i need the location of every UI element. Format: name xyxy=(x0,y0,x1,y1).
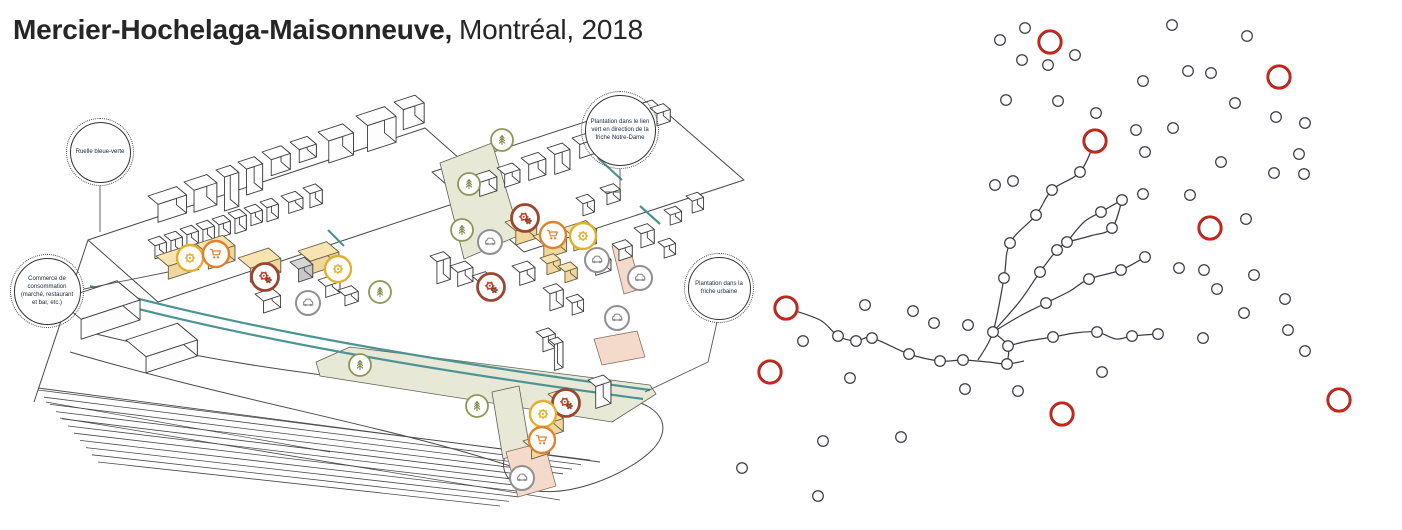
network-node xyxy=(1048,332,1059,343)
network-edge xyxy=(1067,200,1122,242)
callout-circle: Plantation dans la friche urbaine xyxy=(688,257,751,320)
car-icon xyxy=(605,306,629,330)
network-node xyxy=(1116,265,1127,276)
network-node xyxy=(818,436,829,447)
network-node xyxy=(813,491,824,502)
network-node xyxy=(1153,329,1164,340)
network-node xyxy=(1269,168,1280,179)
network-node xyxy=(1002,359,1013,370)
network-node xyxy=(1084,274,1095,285)
car-icon xyxy=(478,230,502,254)
network-node-red xyxy=(1040,32,1060,52)
network-diagram xyxy=(737,20,1351,502)
network-node xyxy=(1096,207,1107,218)
shopping-cart-icon xyxy=(529,427,555,453)
network-node xyxy=(1117,195,1128,206)
building xyxy=(262,146,290,176)
callout-label: Plantation dans la friche urbaine xyxy=(694,280,745,296)
page-title: Mercier-Hochelaga-Maisonneuve,Montréal, … xyxy=(13,14,643,46)
network-node xyxy=(1127,331,1138,342)
network-node xyxy=(860,300,871,311)
network-node xyxy=(1131,125,1142,136)
network-node xyxy=(1242,31,1253,42)
callout-circle: Commerce de consommation (marché, restau… xyxy=(14,258,81,325)
network-node xyxy=(904,349,915,360)
building xyxy=(126,323,197,372)
screenshot-root: Mercier-Hochelaga-Maisonneuve,Montréal, … xyxy=(0,0,1402,530)
callout-label: Commerce de consommation (marché, restau… xyxy=(20,275,75,307)
callout-leader-line xyxy=(645,322,717,392)
network-node xyxy=(1199,265,1210,276)
building xyxy=(549,337,563,370)
shopping-cart-icon xyxy=(540,222,566,248)
network-node xyxy=(1294,149,1305,160)
network-node xyxy=(1138,189,1149,200)
tree-icon xyxy=(466,395,488,417)
tree-icon xyxy=(349,354,371,376)
car-icon xyxy=(510,466,534,490)
building xyxy=(290,257,313,282)
pink-area xyxy=(594,331,645,365)
network-node xyxy=(1052,245,1063,256)
network-node xyxy=(1008,176,1019,187)
network-node xyxy=(1167,20,1178,31)
network-node xyxy=(833,331,844,342)
gear-yellow-icon xyxy=(325,256,351,282)
building xyxy=(255,288,281,313)
building xyxy=(450,261,473,286)
network-node-red xyxy=(1085,131,1105,151)
network-node xyxy=(1140,252,1151,263)
network-node xyxy=(1092,327,1103,338)
car-icon xyxy=(296,291,320,315)
network-node xyxy=(1174,263,1185,274)
network-node xyxy=(1003,341,1014,352)
network-node xyxy=(1241,214,1252,225)
network-node xyxy=(1075,167,1086,178)
network-node xyxy=(1041,298,1052,309)
network-node xyxy=(1047,185,1058,196)
gear-yellow-icon xyxy=(570,223,596,249)
network-node-red xyxy=(776,298,796,318)
network-node xyxy=(1097,367,1108,378)
tree-icon xyxy=(451,219,473,241)
tree-icon xyxy=(458,173,480,195)
callout-commerce-consommation: Commerce de consommation (marché, restau… xyxy=(10,254,84,328)
network-node xyxy=(1017,55,1028,66)
network-node xyxy=(1198,333,1209,344)
network-node-red xyxy=(1269,67,1289,87)
network-node xyxy=(1249,270,1260,281)
network-edge xyxy=(1067,200,1122,242)
network-node xyxy=(851,336,862,347)
network-node xyxy=(990,180,1001,191)
network-node xyxy=(1239,308,1250,319)
network-node xyxy=(1053,96,1064,107)
network-node xyxy=(1206,68,1217,79)
network-node xyxy=(798,336,809,347)
gear-yellow-icon xyxy=(530,401,556,427)
network-node xyxy=(1300,118,1311,129)
building xyxy=(394,95,424,129)
network-node xyxy=(963,320,974,331)
tree-icon xyxy=(369,281,391,303)
network-node xyxy=(1031,210,1042,221)
network-node xyxy=(1091,108,1102,119)
network-node xyxy=(1300,346,1311,357)
network-node xyxy=(737,463,748,474)
network-node xyxy=(1138,76,1149,87)
network-node xyxy=(1001,95,1012,106)
gears-red-icon xyxy=(252,264,279,291)
callout-circle: Plantation dans le lien vert en directio… xyxy=(585,95,656,166)
network-node xyxy=(1183,66,1194,77)
callout-ruelle-bleue-verte: Ruelle bleue-verte xyxy=(66,118,134,186)
network-node xyxy=(908,306,919,317)
car-icon xyxy=(585,248,609,272)
highlighted-building xyxy=(558,262,577,283)
network-node-red xyxy=(1052,404,1072,424)
network-node xyxy=(1020,23,1031,34)
network-node xyxy=(1013,386,1024,397)
network-node xyxy=(896,432,907,443)
callout-label: Ruelle bleue-verte xyxy=(76,148,125,156)
network-node xyxy=(867,333,878,344)
network-node xyxy=(1216,157,1227,168)
network-node xyxy=(995,35,1006,46)
callout-label: Plantation dans le lien vert en directio… xyxy=(591,118,650,142)
network-node xyxy=(1283,325,1294,336)
tree-icon xyxy=(491,129,513,151)
building xyxy=(338,286,358,306)
callout-circle: Ruelle bleue-verte xyxy=(70,122,131,183)
network-node xyxy=(1140,147,1151,158)
title-borough: Mercier-Hochelaga-Maisonneuve, xyxy=(13,14,452,45)
shopping-cart-icon xyxy=(203,241,229,267)
callout-plantation-friche-urbaine: Plantation dans la friche urbaine xyxy=(684,253,754,323)
network-node xyxy=(1168,123,1179,134)
network-node xyxy=(935,356,946,367)
building xyxy=(430,252,450,284)
network-node xyxy=(1212,284,1223,295)
building xyxy=(664,206,682,225)
car-icon xyxy=(628,266,652,290)
highlighted-building xyxy=(540,254,560,275)
network-node xyxy=(1035,267,1046,278)
building xyxy=(658,238,676,258)
network-node-red xyxy=(1329,390,1349,410)
network-node xyxy=(929,318,940,329)
network-node xyxy=(1299,169,1310,180)
gears-red-icon xyxy=(478,274,505,301)
building xyxy=(318,124,353,163)
building xyxy=(290,136,316,162)
network-node xyxy=(958,355,969,366)
network-node xyxy=(1107,223,1118,234)
gears-red-icon xyxy=(512,205,539,232)
network-node xyxy=(1005,238,1016,249)
building xyxy=(512,261,535,285)
network-node-red xyxy=(1200,218,1220,238)
title-city-year: Montréal, 2018 xyxy=(459,14,643,45)
network-node xyxy=(845,373,856,384)
network-node xyxy=(1070,50,1081,61)
network-node xyxy=(988,327,999,338)
callout-plantation-lien-vert: Plantation dans le lien vert en directio… xyxy=(581,91,659,169)
gear-yellow-icon xyxy=(177,245,203,271)
network-node xyxy=(1062,237,1073,248)
network-node xyxy=(999,273,1010,284)
network-node xyxy=(1271,112,1282,123)
network-node xyxy=(1280,294,1291,305)
network-node xyxy=(1043,60,1054,71)
network-node xyxy=(1230,98,1241,109)
network-node xyxy=(960,384,971,395)
network-node xyxy=(1185,190,1196,201)
building xyxy=(686,192,704,213)
building xyxy=(634,224,654,248)
building xyxy=(543,284,563,311)
network-node-red xyxy=(760,362,780,382)
building xyxy=(566,294,584,315)
